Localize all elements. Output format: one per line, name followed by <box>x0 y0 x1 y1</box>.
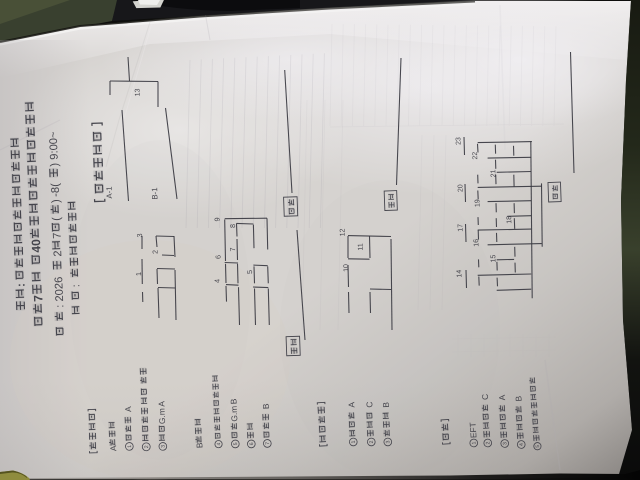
svg-text:B: B <box>261 403 271 409</box>
svg-text:9: 9 <box>213 217 222 221</box>
svg-text:1: 1 <box>471 441 477 444</box>
svg-text:23: 23 <box>455 137 462 145</box>
svg-text:B: B <box>513 395 523 402</box>
svg-text:2: 2 <box>151 250 160 254</box>
svg-text:): ) <box>50 199 62 203</box>
svg-text:3: 3 <box>385 440 391 443</box>
svg-text:1: 1 <box>351 440 357 443</box>
svg-text:) 9:00~: ) 9:00~ <box>48 131 61 167</box>
svg-text:A-1: A-1 <box>105 186 114 198</box>
svg-text:3: 3 <box>161 445 167 448</box>
svg-text:3: 3 <box>135 233 144 237</box>
svg-text:4: 4 <box>213 279 222 283</box>
svg-text:13: 13 <box>134 88 141 96</box>
svg-text:EFT: EFT <box>467 422 478 438</box>
svg-text:C: C <box>480 394 490 401</box>
svg-text:2: 2 <box>144 445 150 448</box>
svg-text:4: 4 <box>216 442 222 445</box>
svg-text:16: 16 <box>473 239 480 247</box>
svg-text:22: 22 <box>472 152 479 160</box>
svg-text:G.m: G.m <box>157 408 168 424</box>
svg-text:14: 14 <box>456 270 463 278</box>
svg-text:5: 5 <box>233 442 239 445</box>
svg-text:B-1: B-1 <box>150 187 159 199</box>
svg-text:18: 18 <box>506 216 513 224</box>
svg-text:C: C <box>364 401 374 408</box>
svg-text:7: 7 <box>31 295 45 303</box>
svg-text:1: 1 <box>127 445 133 448</box>
svg-text:17: 17 <box>457 224 464 232</box>
svg-text:8: 8 <box>228 224 237 228</box>
svg-text:A: A <box>156 401 166 407</box>
svg-text:2: 2 <box>52 250 64 257</box>
svg-text::: : <box>15 283 28 287</box>
svg-text:21: 21 <box>490 169 497 177</box>
svg-text:11: 11 <box>357 243 364 251</box>
svg-text:19: 19 <box>474 199 481 207</box>
svg-text:2: 2 <box>485 441 491 444</box>
svg-text:6: 6 <box>214 255 223 259</box>
svg-text:: 2026: : 2026 <box>53 276 66 308</box>
svg-text:40: 40 <box>29 239 44 253</box>
svg-text:A: A <box>346 401 356 408</box>
svg-text:B: B <box>228 398 238 404</box>
svg-text::: : <box>70 284 82 287</box>
svg-text:7: 7 <box>265 442 271 445</box>
svg-text:7: 7 <box>228 247 237 251</box>
svg-text:20: 20 <box>457 184 464 192</box>
svg-text:5: 5 <box>245 270 254 274</box>
svg-text:6: 6 <box>249 442 255 445</box>
svg-text:G.m: G.m <box>229 406 240 422</box>
svg-text:10: 10 <box>343 264 350 272</box>
svg-text:4: 4 <box>519 443 525 446</box>
svg-text:15: 15 <box>490 254 497 262</box>
svg-text:(: ( <box>51 217 63 221</box>
svg-text:1: 1 <box>134 272 143 276</box>
svg-text:A: A <box>497 394 507 401</box>
svg-text:B: B <box>381 401 391 408</box>
svg-text:3: 3 <box>502 442 508 445</box>
svg-text:-8(: -8( <box>50 183 63 197</box>
svg-text:12: 12 <box>339 228 346 236</box>
svg-text:2: 2 <box>369 440 375 443</box>
svg-text:A: A <box>123 406 133 412</box>
svg-text:7: 7 <box>52 232 64 239</box>
